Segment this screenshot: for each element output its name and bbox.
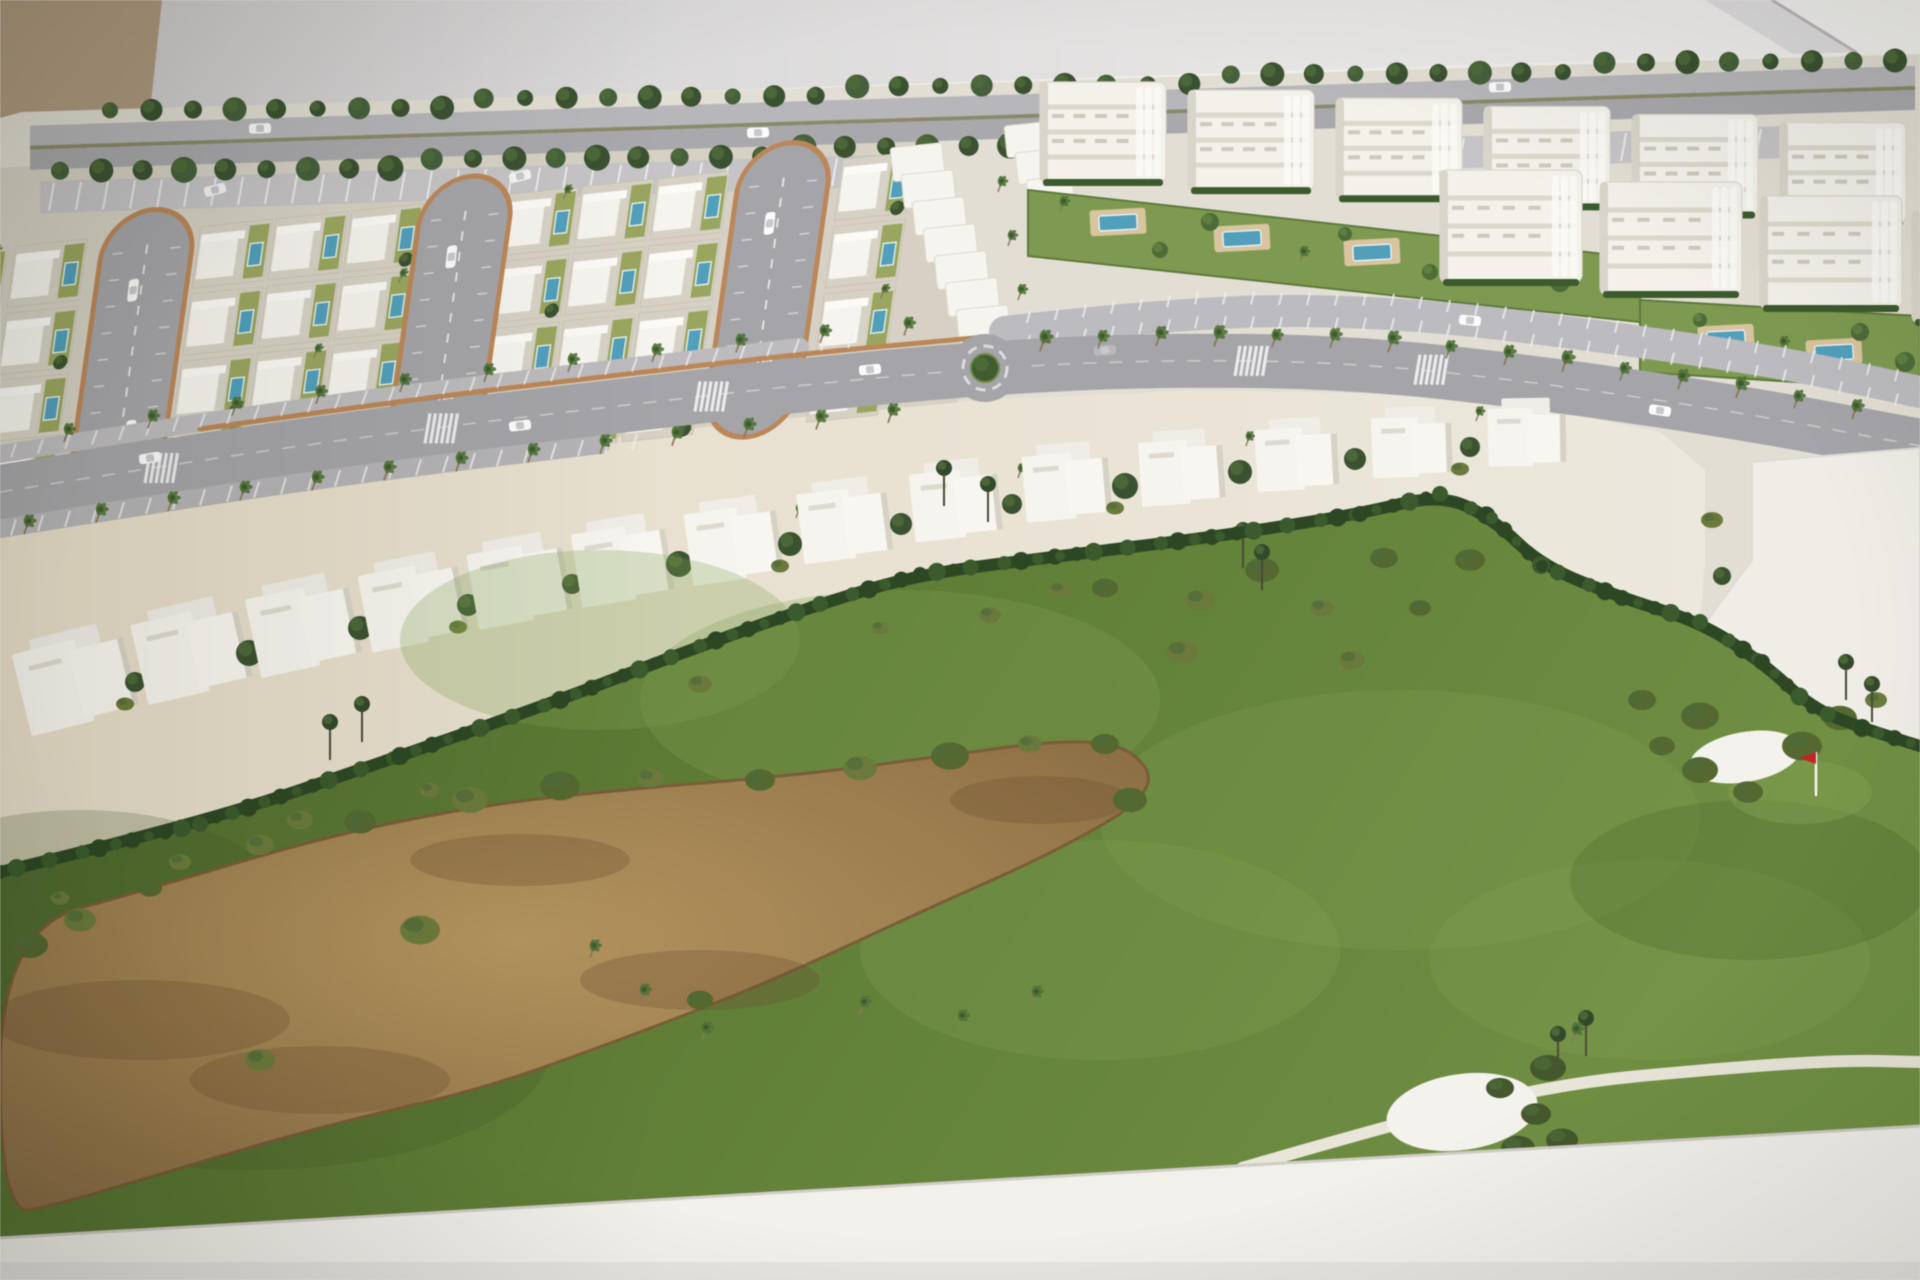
photo-lighting [0, 0, 1920, 1280]
architectural-model-scene [0, 0, 1920, 1280]
model-photo-stage [0, 0, 1920, 1280]
